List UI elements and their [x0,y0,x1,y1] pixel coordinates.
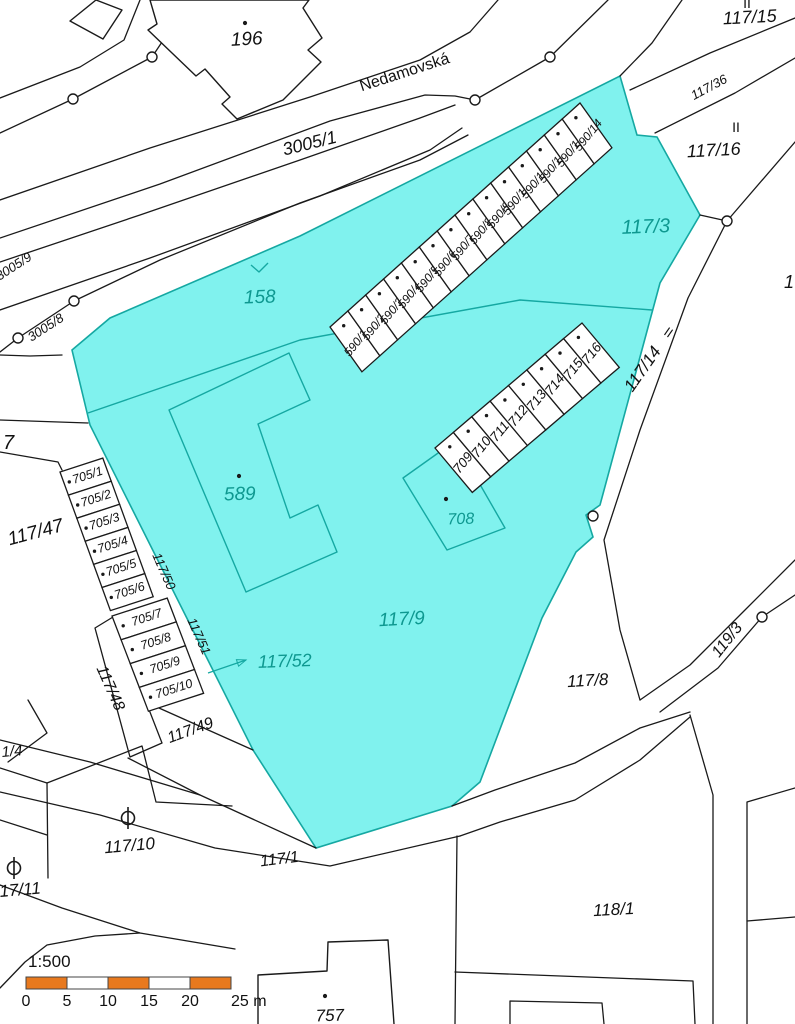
scale-tick-4: 20 [181,993,199,1010]
parcel-label-1-4: 1/4 [1,742,23,761]
parcel-label-117-10: 117/10 [103,834,156,857]
garage-dot [360,308,363,311]
garage-dot [68,480,71,483]
building-point-icon [444,497,448,501]
parcel-label-117-52: 117/52 [258,650,312,672]
garage-dot [101,573,104,576]
garage-dot [521,164,524,167]
garage-dot [539,148,542,151]
parcel-label-1: 1 [784,272,794,292]
parcel-label-117-48: 117/48 [93,663,128,714]
garage-dot [122,624,125,627]
garage-dot [414,260,417,263]
boundary-vertical-center [455,836,457,1024]
parcel-label-3005-9: 3005/9 [0,249,34,283]
garage-dot [485,414,488,417]
garage-dot [76,503,79,506]
scale-tick-2: 10 [99,993,117,1010]
scale-tick-0: 0 [22,993,31,1010]
boundary-marker-icon [588,511,598,521]
parcel-label-117-3: 117/3 [621,215,670,239]
boundary-marker-icon [470,95,480,105]
building-point-icon [243,21,247,25]
parcel-label-757: 757 [315,1005,345,1024]
garage-dot [431,244,434,247]
parcel-label-17-11: 17/11 [0,878,41,901]
parcel-label-3005-8: 3005/8 [25,310,67,345]
garage-dot [110,596,113,599]
cadastral-map-canvas[interactable]: 590/1590/2590/3590/4590/5590/6590/7590/8… [0,0,795,1024]
cadastral-map-viewport: 590/1590/2590/3590/4590/5590/6590/7590/8… [0,0,795,1024]
garage-dot [503,180,506,183]
left-line-2 [0,820,47,835]
scale-bar-segment [149,977,190,989]
left-line-1 [0,768,47,783]
garage-dot [467,430,470,433]
garage-dot [448,445,451,448]
parcel-label-117-1: 117/1 [259,849,300,871]
verge-line-4 [0,355,62,356]
garage-dot [485,196,488,199]
parcel-label-Nedamovsk-: Nedamovská [358,50,452,95]
scale-bar-segment [26,977,67,989]
road-east-edge [620,0,682,76]
scale-bar-segment [190,977,231,989]
garage-dot [556,132,559,135]
garage-dot [522,383,525,386]
boundary-marker-icon [545,52,555,62]
scale-ratio-label: 1:500 [28,952,71,971]
parcel-label-7: 7 [3,432,15,454]
boundary-right-2 [747,788,795,1024]
garage-dot [396,276,399,279]
building-point-icon [237,474,241,478]
garage-dot [140,672,143,675]
scale-tick-5: 25 m [231,993,267,1010]
scale-tick-1: 5 [63,993,72,1010]
sliver-line-2 [0,452,62,470]
garage-dot [149,696,152,699]
boundary-right-3 [747,917,795,921]
boundary-marker-icon [13,333,23,343]
boundary-marker-icon [757,612,767,622]
scale-bar-segment [108,977,149,989]
boundary-marker-icon [722,216,732,226]
building-partial-bottom-1 [455,972,695,1024]
parcel-label-589: 589 [224,483,257,505]
parcel-label-117-49: 117/49 [165,715,216,747]
garage-dot [574,116,577,119]
sliver-line-1 [0,420,88,423]
garage-dot [378,292,381,295]
garage-dot [131,648,134,651]
scale-bar: 1:5000510152025 m [22,952,267,1010]
building-point-icon [323,994,327,998]
boundary-marker-icon [147,52,157,62]
garage-dot [84,526,87,529]
parcel-label-II: II [743,0,751,11]
lane-119-3-west [640,560,795,700]
garage-dot [577,336,580,339]
parcel-label-117-8: 117/8 [567,670,610,691]
garage-dot [93,550,96,553]
parcel-label-708: 708 [447,511,474,529]
parcel-label-158: 158 [244,286,277,308]
garage-dot [540,367,543,370]
parcel-label-117-47: 117/47 [5,515,67,550]
parcel-label-118-1: 118/1 [593,899,635,920]
parcel-label-3005-1: 3005/1 [280,127,338,160]
boundary-marker-icon [68,94,78,104]
building-partial-bottom-2 [510,1001,604,1024]
parcel-label-196: 196 [230,28,263,51]
garage-dot [558,351,561,354]
scale-bar-segment [67,977,108,989]
garage-dot [467,212,470,215]
boundary-right-1 [690,715,713,1024]
parcel-117-10-west [47,783,48,878]
parcel-label-II: II [732,119,740,135]
building-fragment-top-left [70,0,122,39]
garage-dot [342,324,345,327]
garage-dot [503,398,506,401]
parcel-label-117-9: 117/9 [378,608,426,631]
boundary-marker-icon [69,296,79,306]
garage-dot [449,228,452,231]
scale-tick-3: 15 [140,993,158,1010]
parcel-label-117-16: 117/16 [686,139,742,162]
